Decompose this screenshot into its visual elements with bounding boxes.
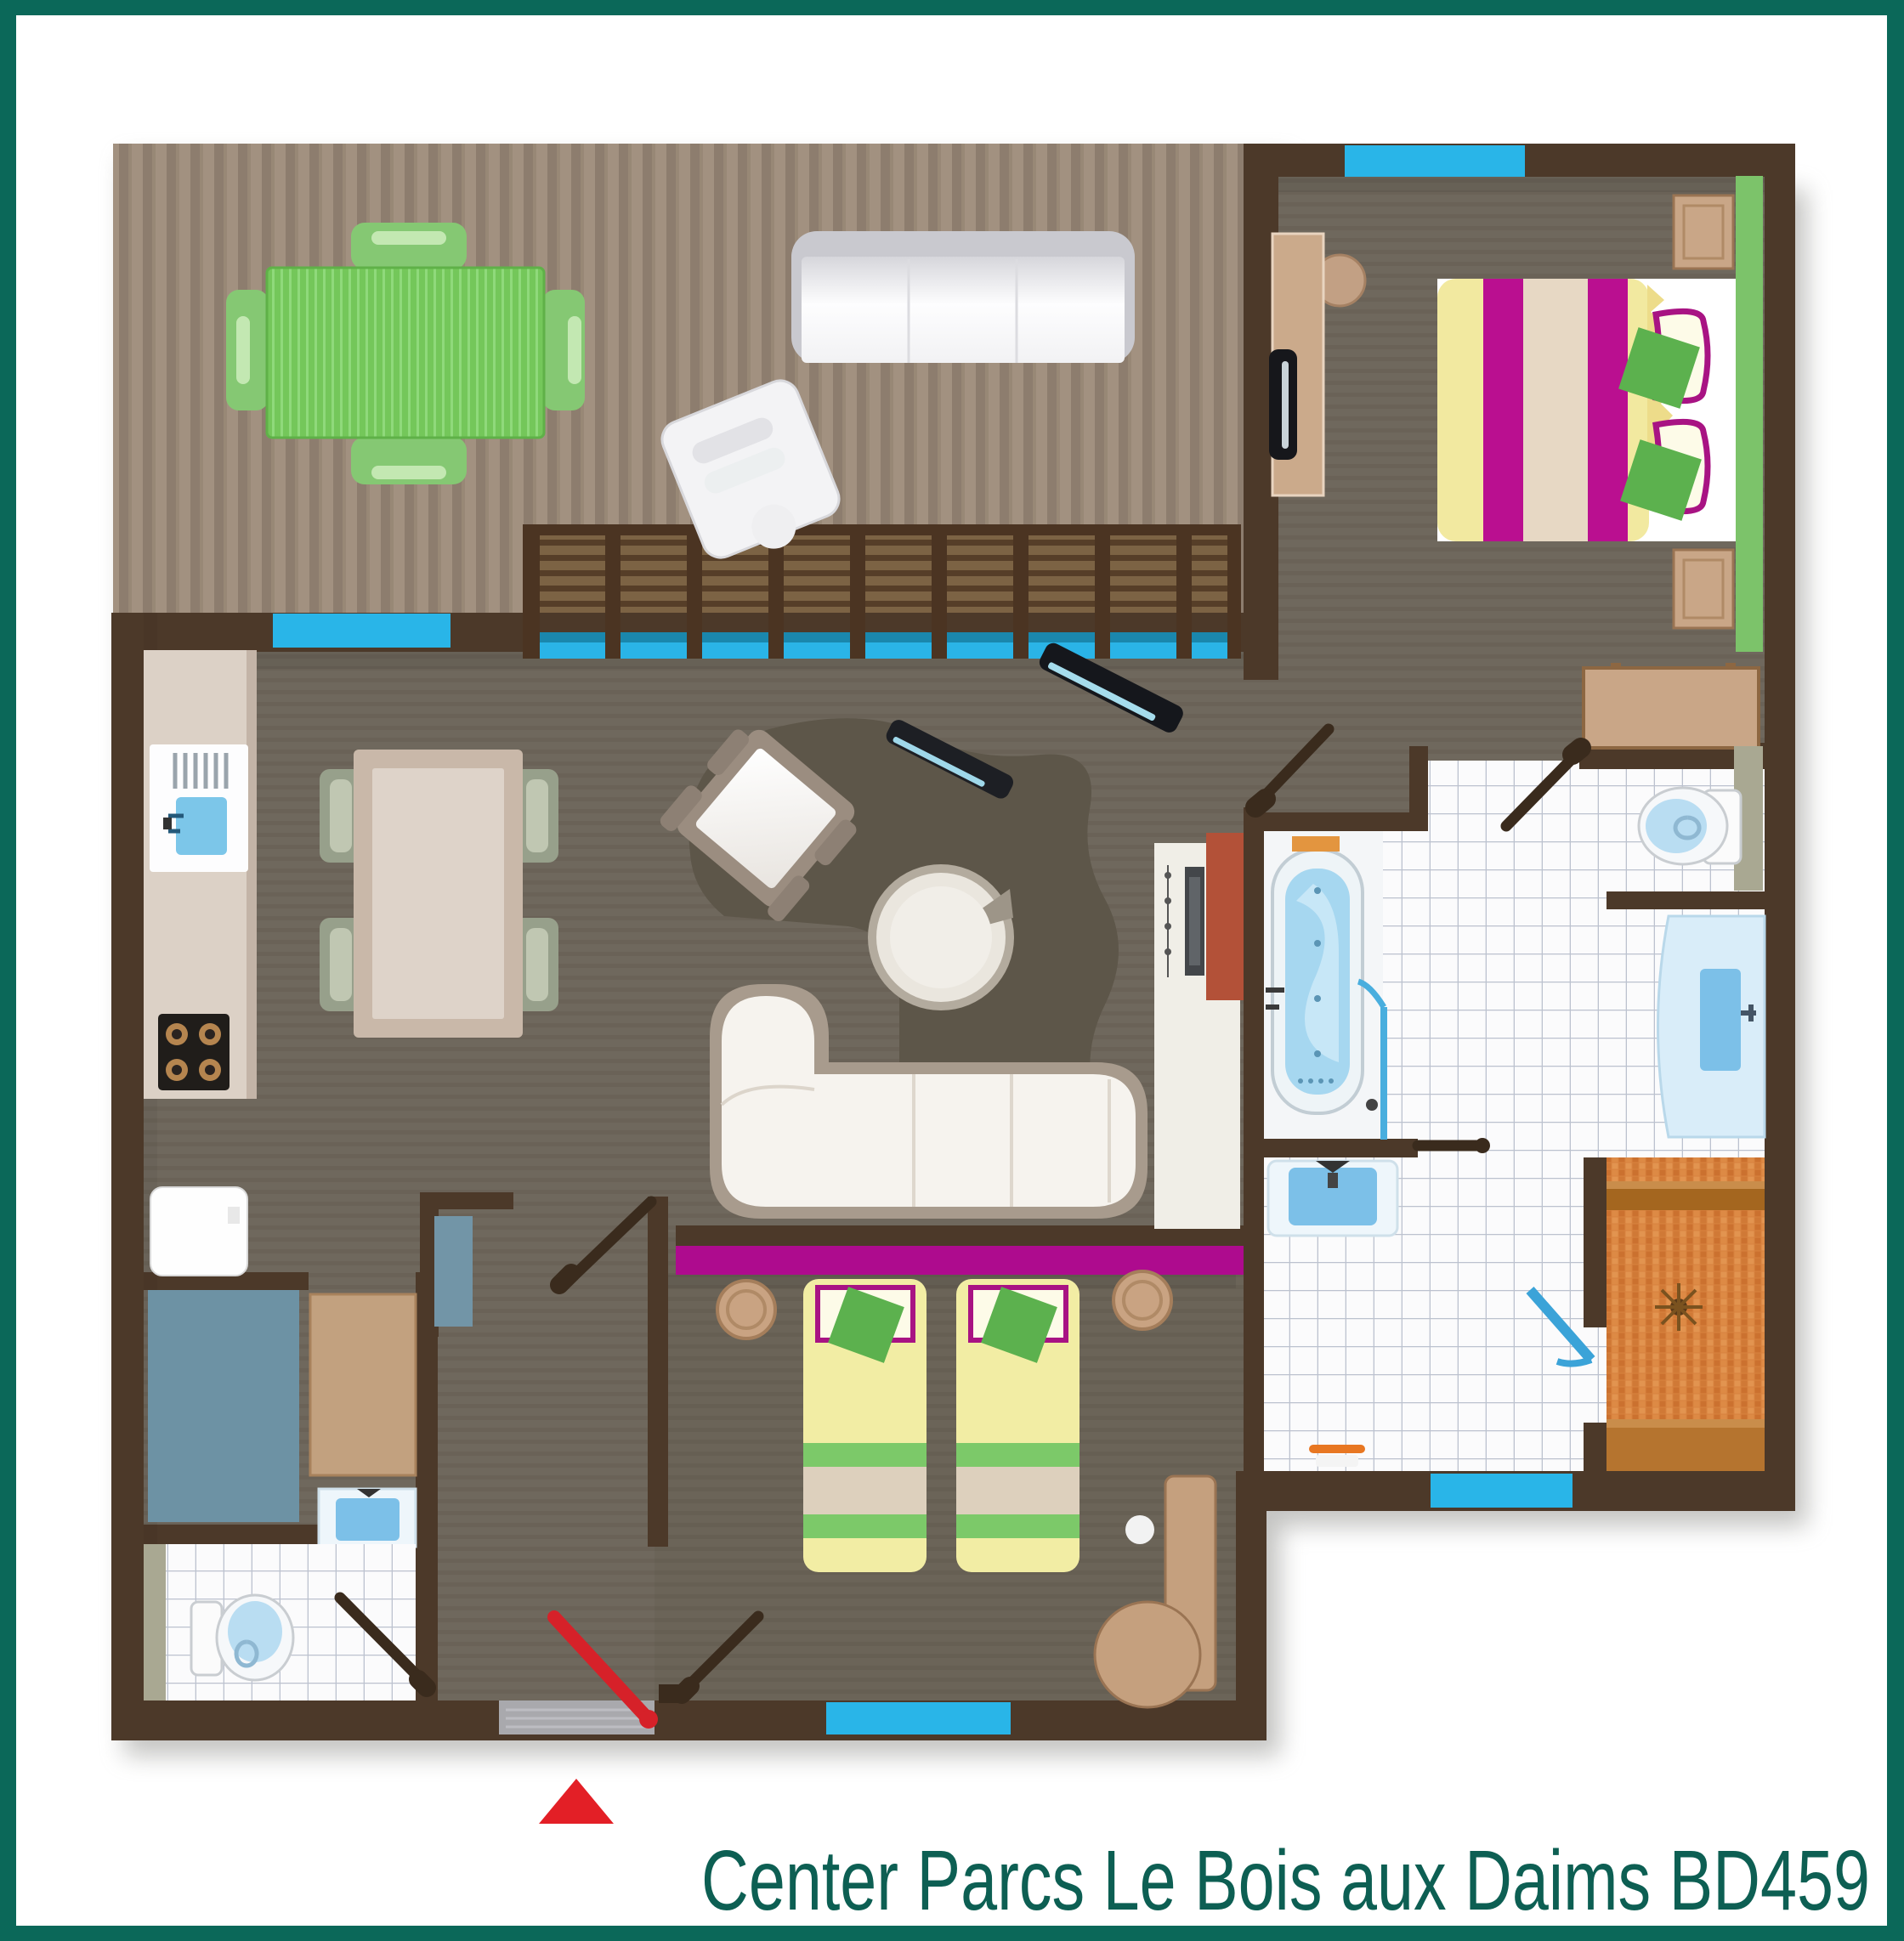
svg-text:Center Parcs Le Bois aux Daims: Center Parcs Le Bois aux Daims BD459 <box>701 1833 1870 1928</box>
